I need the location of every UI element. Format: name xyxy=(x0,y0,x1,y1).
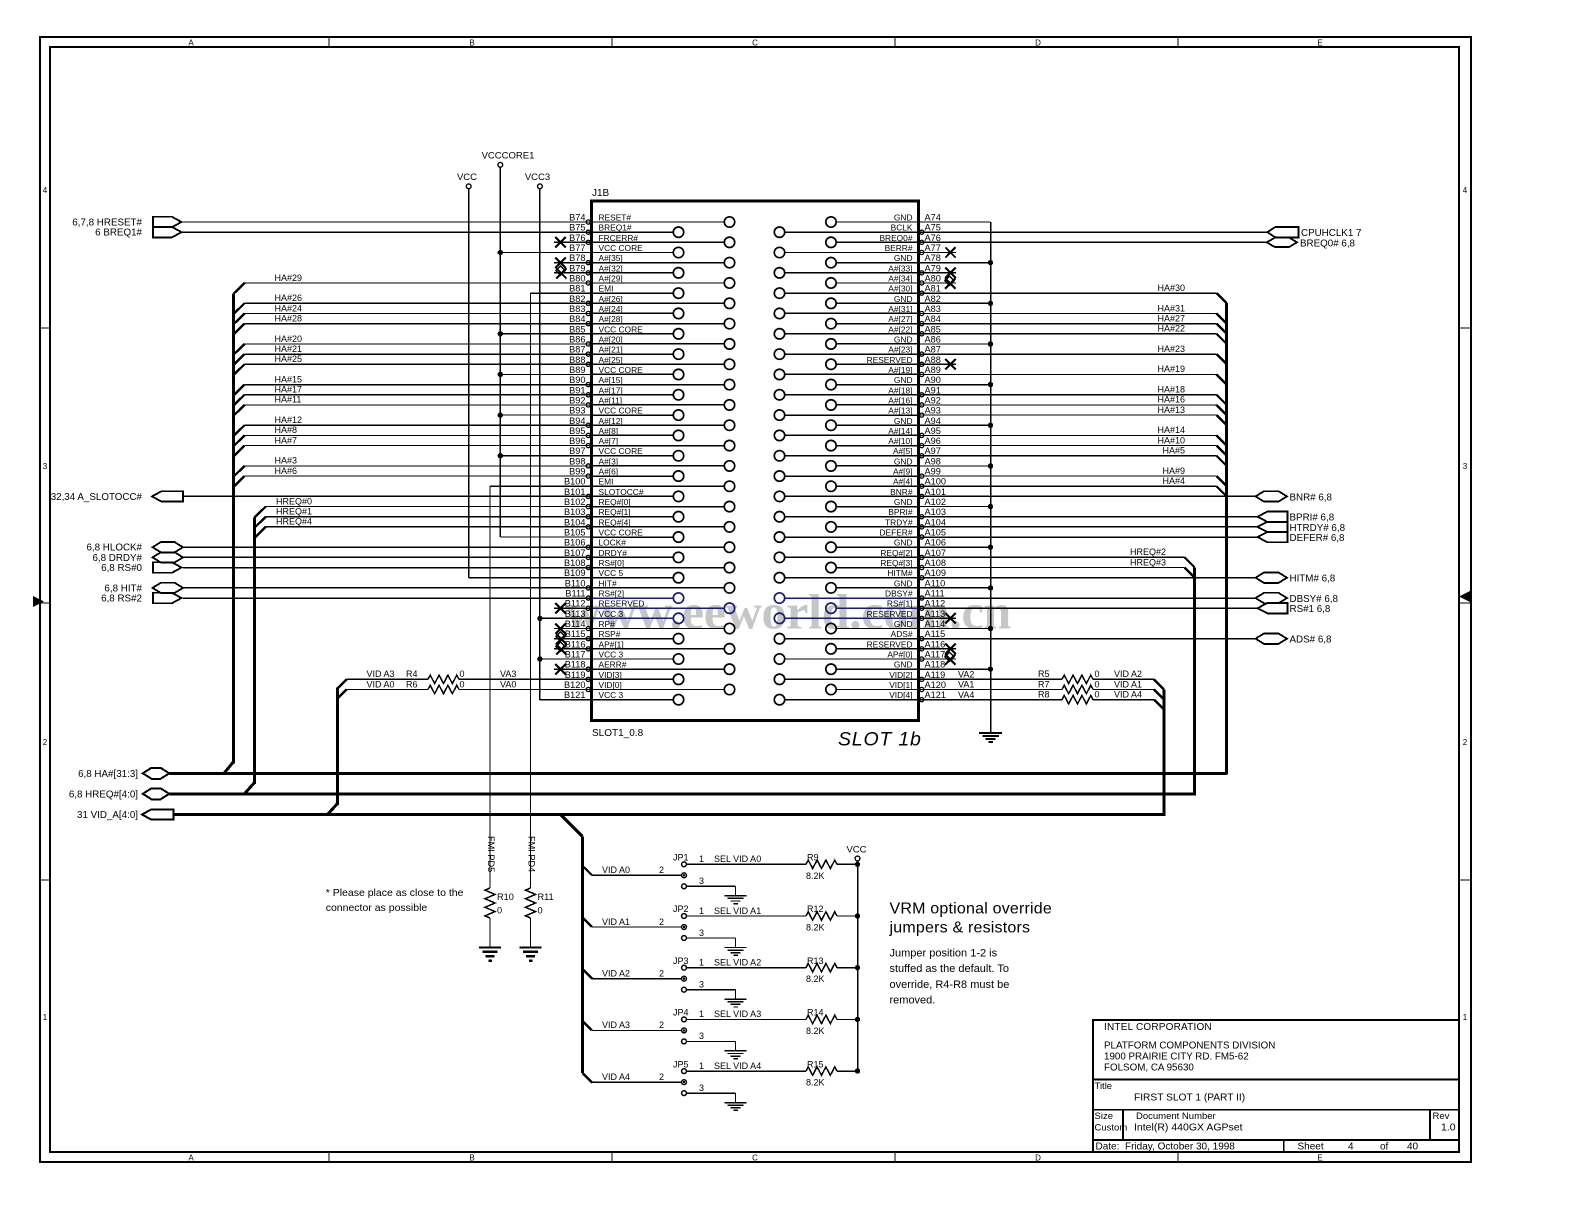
svg-text:R8: R8 xyxy=(1038,689,1050,699)
svg-text:HREQ#3: HREQ#3 xyxy=(1130,557,1166,567)
svg-text:B84: B84 xyxy=(569,314,585,324)
svg-text:HA#8: HA#8 xyxy=(275,425,298,435)
svg-text:HA#17: HA#17 xyxy=(275,385,303,395)
svg-text:B93: B93 xyxy=(569,406,585,416)
svg-text:1: 1 xyxy=(699,1009,704,1019)
svg-text:3: 3 xyxy=(699,928,704,938)
svg-text:HA#14: HA#14 xyxy=(1157,425,1185,435)
svg-text:RESERVED: RESERVED xyxy=(867,355,913,365)
svg-text:VID A2: VID A2 xyxy=(1114,669,1142,679)
svg-text:A91: A91 xyxy=(925,385,941,395)
svg-text:A106: A106 xyxy=(925,538,946,548)
svg-text:BPRI#: BPRI# xyxy=(888,507,913,517)
svg-text:B112: B112 xyxy=(565,599,586,609)
svg-text:RP#: RP# xyxy=(599,619,616,629)
svg-text:1: 1 xyxy=(699,958,704,968)
svg-text:TRDY#: TRDY# xyxy=(885,517,913,527)
svg-text:A115: A115 xyxy=(925,629,946,639)
svg-text:B91: B91 xyxy=(569,385,585,395)
svg-text:A#[16]: A#[16] xyxy=(888,395,912,405)
svg-text:4: 4 xyxy=(1463,186,1468,195)
svg-text:1: 1 xyxy=(699,906,704,916)
svg-text:RS#1 6,8: RS#1 6,8 xyxy=(1290,604,1331,615)
svg-text:A83: A83 xyxy=(925,304,941,314)
svg-text:GND: GND xyxy=(894,578,913,588)
svg-text:Friday, October 30, 1998: Friday, October 30, 1998 xyxy=(1125,1142,1235,1153)
svg-text:Sheet: Sheet xyxy=(1298,1142,1324,1153)
svg-text:JP4: JP4 xyxy=(673,1008,689,1018)
svg-text:A107: A107 xyxy=(925,548,946,558)
svg-text:VID[3]: VID[3] xyxy=(599,670,622,680)
svg-text:R10: R10 xyxy=(497,892,514,902)
svg-text:B94: B94 xyxy=(569,416,585,426)
svg-text:B104: B104 xyxy=(564,517,585,527)
svg-text:A#[11]: A#[11] xyxy=(599,395,623,405)
svg-text:B79: B79 xyxy=(569,263,585,273)
svg-text:8.2K: 8.2K xyxy=(806,1026,825,1036)
svg-text:VCC 3: VCC 3 xyxy=(599,609,624,619)
svg-text:GND: GND xyxy=(894,253,913,263)
svg-text:RESERVED: RESERVED xyxy=(599,599,645,609)
svg-text:B98: B98 xyxy=(569,456,585,466)
svg-text:A119: A119 xyxy=(925,670,946,680)
svg-text:RESERVED: RESERVED xyxy=(867,639,913,649)
svg-text:VCC CORE: VCC CORE xyxy=(599,243,644,253)
svg-text:HIT#: HIT# xyxy=(599,578,617,588)
svg-text:VCC 3: VCC 3 xyxy=(599,690,624,700)
svg-text:RS#[2]: RS#[2] xyxy=(599,589,625,599)
svg-text:DBSY#: DBSY# xyxy=(885,589,913,599)
svg-text:D: D xyxy=(1035,39,1041,48)
svg-text:A84: A84 xyxy=(925,314,941,324)
svg-text:A#[23]: A#[23] xyxy=(888,345,912,355)
svg-text:A#[14]: A#[14] xyxy=(888,426,912,436)
svg-text:A104: A104 xyxy=(925,517,946,527)
svg-text:JP3: JP3 xyxy=(673,956,689,966)
svg-text:of: of xyxy=(1380,1142,1389,1153)
svg-text:2: 2 xyxy=(659,1020,664,1030)
svg-text:ADS#: ADS# xyxy=(891,629,913,639)
svg-text:HREQ#4: HREQ#4 xyxy=(276,517,312,527)
svg-text:0: 0 xyxy=(460,679,465,689)
svg-text:31 VID_A[4:0]: 31 VID_A[4:0] xyxy=(77,810,138,821)
svg-text:VCCCORE1: VCCCORE1 xyxy=(482,151,535,162)
svg-text:A81: A81 xyxy=(925,284,941,294)
svg-text:B111: B111 xyxy=(565,589,585,599)
svg-text:FMI PD4: FMI PD4 xyxy=(527,836,537,872)
svg-text:HREQ#0: HREQ#0 xyxy=(276,496,312,506)
svg-text:6,8 RS#2: 6,8 RS#2 xyxy=(101,594,142,605)
svg-text:A116: A116 xyxy=(925,639,946,649)
svg-text:HA#5: HA#5 xyxy=(1162,446,1185,456)
svg-text:B115: B115 xyxy=(565,629,586,639)
svg-text:R14: R14 xyxy=(807,1008,824,1018)
svg-text:VID A1: VID A1 xyxy=(1114,679,1142,689)
svg-text:B103: B103 xyxy=(564,507,585,517)
svg-text:RESERVED: RESERVED xyxy=(867,609,913,619)
svg-text:3: 3 xyxy=(1463,462,1468,471)
svg-text:Date:: Date: xyxy=(1096,1142,1120,1153)
svg-text:C: C xyxy=(752,39,758,48)
svg-text:A#[7]: A#[7] xyxy=(599,436,619,446)
svg-text:HA#30: HA#30 xyxy=(1157,283,1185,293)
svg-text:B83: B83 xyxy=(569,304,585,314)
svg-text:8.2K: 8.2K xyxy=(806,1078,825,1088)
svg-text:VCC3: VCC3 xyxy=(525,172,550,183)
svg-text:HA#21: HA#21 xyxy=(275,344,303,354)
svg-text:A96: A96 xyxy=(925,436,941,446)
svg-text:GND: GND xyxy=(894,660,913,670)
svg-text:R5: R5 xyxy=(1038,669,1050,679)
svg-text:A101: A101 xyxy=(925,487,946,497)
svg-text:B108: B108 xyxy=(564,558,585,568)
svg-text:Title: Title xyxy=(1095,1081,1113,1092)
svg-text:A86: A86 xyxy=(925,334,941,344)
svg-text:BNR# 6,8: BNR# 6,8 xyxy=(1290,492,1333,503)
svg-text:1: 1 xyxy=(699,854,704,864)
svg-text:2: 2 xyxy=(43,738,48,747)
svg-text:A114: A114 xyxy=(925,619,946,629)
svg-text:SLOT 1b: SLOT 1b xyxy=(838,729,922,751)
svg-text:A#[18]: A#[18] xyxy=(888,385,912,395)
svg-text:EMI: EMI xyxy=(599,284,614,294)
svg-text:A97: A97 xyxy=(925,446,941,456)
svg-text:1: 1 xyxy=(699,1061,704,1071)
svg-text:2: 2 xyxy=(659,969,664,979)
svg-text:R9: R9 xyxy=(807,853,819,863)
svg-text:A: A xyxy=(188,1154,194,1163)
svg-text:A#[33]: A#[33] xyxy=(888,263,912,273)
svg-text:HA#16: HA#16 xyxy=(1157,395,1185,405)
svg-text:HA#11: HA#11 xyxy=(275,395,302,405)
svg-text:A117: A117 xyxy=(925,650,946,660)
svg-text:6,8 RS#0: 6,8 RS#0 xyxy=(101,563,142,574)
svg-text:B80: B80 xyxy=(569,273,585,283)
svg-text:A#[27]: A#[27] xyxy=(888,314,912,324)
svg-text:VA0: VA0 xyxy=(500,679,516,689)
svg-text:A93: A93 xyxy=(925,406,941,416)
svg-text:A#[8]: A#[8] xyxy=(599,426,619,436)
svg-text:B119: B119 xyxy=(565,670,586,680)
svg-text:A103: A103 xyxy=(925,507,946,517)
svg-text:VID A2: VID A2 xyxy=(602,969,630,979)
svg-text:A#[20]: A#[20] xyxy=(599,334,623,344)
svg-text:B105: B105 xyxy=(564,528,585,538)
svg-text:B117: B117 xyxy=(565,650,586,660)
svg-text:A121: A121 xyxy=(925,690,946,700)
svg-text:4: 4 xyxy=(1348,1142,1354,1153)
svg-text:HA#23: HA#23 xyxy=(1157,344,1185,354)
svg-text:GND: GND xyxy=(894,619,913,629)
svg-text:B109: B109 xyxy=(564,568,585,578)
svg-text:1: 1 xyxy=(43,1013,48,1022)
svg-text:8.2K: 8.2K xyxy=(806,871,825,881)
svg-text:3: 3 xyxy=(699,876,704,886)
svg-text:DEFER#: DEFER# xyxy=(879,528,912,538)
svg-text:A#[10]: A#[10] xyxy=(888,436,912,446)
svg-text:A#[3]: A#[3] xyxy=(599,456,619,466)
svg-text:A#[28]: A#[28] xyxy=(599,314,623,324)
svg-text:REQ#[0]: REQ#[0] xyxy=(599,497,631,507)
svg-text:A85: A85 xyxy=(925,324,941,334)
svg-text:B75: B75 xyxy=(569,223,585,233)
svg-text:A#[22]: A#[22] xyxy=(888,324,912,334)
svg-text:FMI PD5: FMI PD5 xyxy=(486,836,496,872)
svg-text:REQ#[2]: REQ#[2] xyxy=(880,548,912,558)
svg-text:A108: A108 xyxy=(925,558,946,568)
svg-text:HA#4: HA#4 xyxy=(1162,476,1185,486)
svg-text:8.2K: 8.2K xyxy=(806,923,825,933)
svg-text:SEL VID A3: SEL VID A3 xyxy=(714,1009,761,1019)
svg-text:HA#7: HA#7 xyxy=(275,435,298,445)
svg-text:A87: A87 xyxy=(925,345,941,355)
svg-text:A95: A95 xyxy=(925,426,941,436)
svg-text:SEL VID A0: SEL VID A0 xyxy=(714,854,761,864)
svg-text:HA#26: HA#26 xyxy=(275,293,303,303)
svg-text:A: A xyxy=(188,39,194,48)
svg-text:DEFER# 6,8: DEFER# 6,8 xyxy=(1290,533,1346,544)
svg-text:R12: R12 xyxy=(807,904,824,914)
svg-text:GND: GND xyxy=(894,538,913,548)
svg-text:B: B xyxy=(469,39,474,48)
svg-text:B116: B116 xyxy=(565,639,586,649)
svg-text:0: 0 xyxy=(460,669,465,679)
svg-text:override, R4-R8 must be: override, R4-R8 must be xyxy=(890,979,1010,991)
svg-text:AP#[1]: AP#[1] xyxy=(599,639,624,649)
svg-text:3: 3 xyxy=(699,1083,704,1093)
svg-text:A#[24]: A#[24] xyxy=(599,304,623,314)
svg-text:B114: B114 xyxy=(565,619,586,629)
svg-text:GND: GND xyxy=(894,294,913,304)
svg-text:VID[2]: VID[2] xyxy=(889,670,912,680)
svg-text:VA4: VA4 xyxy=(958,690,974,700)
svg-text:HA#28: HA#28 xyxy=(275,313,303,323)
svg-text:* Please place as close to the: * Please place as close to the xyxy=(326,887,464,899)
svg-text:2: 2 xyxy=(1463,738,1468,747)
svg-text:R6: R6 xyxy=(406,679,418,689)
svg-text:A#[31]: A#[31] xyxy=(888,304,912,314)
svg-text:D: D xyxy=(1035,1154,1041,1163)
svg-text:RESET#: RESET# xyxy=(599,213,632,223)
svg-text:EMI: EMI xyxy=(599,477,614,487)
svg-text:RS#[0]: RS#[0] xyxy=(599,558,625,568)
svg-text:0: 0 xyxy=(497,906,502,916)
svg-text:B90: B90 xyxy=(569,375,585,385)
svg-text:HREQ#2: HREQ#2 xyxy=(1130,547,1166,557)
svg-text:A110: A110 xyxy=(925,578,946,588)
svg-text:VCC CORE: VCC CORE xyxy=(599,528,644,538)
svg-text:VCC CORE: VCC CORE xyxy=(599,406,644,416)
svg-text:B110: B110 xyxy=(565,578,586,588)
svg-text:HA#27: HA#27 xyxy=(1157,313,1185,323)
svg-text:B96: B96 xyxy=(569,436,585,446)
svg-text:3: 3 xyxy=(699,1031,704,1041)
svg-text:JP5: JP5 xyxy=(673,1059,689,1069)
svg-text:AERR#: AERR# xyxy=(599,660,627,670)
svg-text:B99: B99 xyxy=(569,467,585,477)
svg-text:REQ#[4]: REQ#[4] xyxy=(599,517,631,527)
svg-text:PLATFORM COMPONENTS DIVISION: PLATFORM COMPONENTS DIVISION xyxy=(1104,1041,1275,1052)
svg-text:A#[12]: A#[12] xyxy=(599,416,623,426)
svg-text:A#[5]: A#[5] xyxy=(893,446,913,456)
svg-text:A98: A98 xyxy=(925,456,941,466)
svg-text:VRM optional override: VRM optional override xyxy=(890,901,1053,918)
svg-text:A77: A77 xyxy=(925,243,941,253)
svg-text:GND: GND xyxy=(894,213,913,223)
svg-text:A90: A90 xyxy=(925,375,941,385)
svg-text:A113: A113 xyxy=(925,609,946,619)
svg-text:A75: A75 xyxy=(925,223,941,233)
svg-text:AP#[0]: AP#[0] xyxy=(887,650,912,660)
svg-text:A#[26]: A#[26] xyxy=(599,294,623,304)
svg-text:1: 1 xyxy=(1463,1013,1468,1022)
svg-text:VA2: VA2 xyxy=(958,670,974,680)
svg-text:B87: B87 xyxy=(569,345,585,355)
svg-text:Size: Size xyxy=(1095,1111,1113,1122)
svg-text:REQ#[3]: REQ#[3] xyxy=(880,558,912,568)
svg-text:B92: B92 xyxy=(569,395,585,405)
svg-text:B107: B107 xyxy=(564,548,585,558)
svg-text:SEL VID A1: SEL VID A1 xyxy=(714,906,761,916)
svg-text:GND: GND xyxy=(894,497,913,507)
svg-text:A92: A92 xyxy=(925,395,941,405)
svg-text:A76: A76 xyxy=(925,233,941,243)
svg-text:B78: B78 xyxy=(569,253,585,263)
svg-text:VCC CORE: VCC CORE xyxy=(599,365,644,375)
svg-text:R4: R4 xyxy=(406,669,418,679)
svg-text:HA#3: HA#3 xyxy=(275,456,298,466)
svg-text:B102: B102 xyxy=(564,497,585,507)
svg-text:A#[29]: A#[29] xyxy=(599,273,623,283)
svg-text:HA#22: HA#22 xyxy=(1157,324,1185,334)
svg-text:VID[4]: VID[4] xyxy=(889,690,912,700)
svg-text:A109: A109 xyxy=(925,568,946,578)
svg-text:HA#19: HA#19 xyxy=(1157,364,1185,374)
svg-text:A78: A78 xyxy=(925,253,941,263)
svg-text:0: 0 xyxy=(1095,689,1100,699)
svg-text:VID A0: VID A0 xyxy=(602,865,630,875)
svg-text:B89: B89 xyxy=(569,365,585,375)
svg-text:FRCERR#: FRCERR# xyxy=(599,233,639,243)
svg-text:HA#10: HA#10 xyxy=(1157,435,1185,445)
svg-text:B106: B106 xyxy=(564,538,585,548)
svg-text:HA#31: HA#31 xyxy=(1157,303,1185,313)
svg-text:A82: A82 xyxy=(925,294,941,304)
svg-text:BERR#: BERR# xyxy=(885,243,913,253)
svg-text:VID[0]: VID[0] xyxy=(599,680,622,690)
svg-text:0: 0 xyxy=(1095,669,1100,679)
svg-text:A100: A100 xyxy=(925,477,946,487)
svg-text:SLOTOCC#: SLOTOCC# xyxy=(599,487,644,497)
svg-text:R7: R7 xyxy=(1038,679,1050,689)
svg-text:B: B xyxy=(469,1154,474,1163)
svg-text:0: 0 xyxy=(538,906,543,916)
svg-text:HA#18: HA#18 xyxy=(1157,385,1185,395)
svg-text:B74: B74 xyxy=(569,213,585,223)
svg-text:B100: B100 xyxy=(564,477,585,487)
svg-text:HA#20: HA#20 xyxy=(275,334,303,344)
svg-text:GND: GND xyxy=(894,375,913,385)
svg-text:C: C xyxy=(752,1154,758,1163)
svg-text:SEL VID A2: SEL VID A2 xyxy=(714,958,761,968)
svg-text:VCC CORE: VCC CORE xyxy=(599,446,644,456)
svg-text:VID A3: VID A3 xyxy=(367,669,395,679)
svg-text:HA#25: HA#25 xyxy=(275,354,303,364)
svg-text:VCC: VCC xyxy=(457,172,477,183)
svg-text:VCC 3: VCC 3 xyxy=(599,650,624,660)
svg-text:removed.: removed. xyxy=(890,995,936,1007)
svg-text:FIRST SLOT 1 (PART II): FIRST SLOT 1 (PART II) xyxy=(1134,1093,1245,1104)
svg-text:1.0: 1.0 xyxy=(1441,1122,1456,1134)
svg-text:A#[15]: A#[15] xyxy=(599,375,623,385)
svg-text:R13: R13 xyxy=(807,956,824,966)
svg-text:VCC 5: VCC 5 xyxy=(599,568,624,578)
svg-text:HA#13: HA#13 xyxy=(1157,405,1185,415)
svg-text:HA#12: HA#12 xyxy=(275,415,303,425)
svg-text:BREQ0# 6,8: BREQ0# 6,8 xyxy=(1300,238,1356,249)
svg-text:Intel(R) 440GX AGPset: Intel(R) 440GX AGPset xyxy=(1134,1122,1243,1134)
svg-text:3: 3 xyxy=(43,462,48,471)
svg-text:E: E xyxy=(1317,1154,1322,1163)
svg-text:Rev: Rev xyxy=(1433,1111,1450,1122)
svg-text:B76: B76 xyxy=(569,233,585,243)
svg-text:E: E xyxy=(1317,39,1322,48)
svg-text:VID A4: VID A4 xyxy=(602,1072,630,1082)
svg-text:A#[30]: A#[30] xyxy=(888,284,912,294)
svg-text:B82: B82 xyxy=(569,294,585,304)
svg-text:A88: A88 xyxy=(925,355,941,365)
svg-text:R15: R15 xyxy=(807,1059,824,1069)
svg-text:Custom: Custom xyxy=(1095,1123,1128,1134)
svg-text:A99: A99 xyxy=(925,467,941,477)
svg-text:JP1: JP1 xyxy=(673,853,689,863)
svg-text:4: 4 xyxy=(43,186,48,195)
svg-text:LOCK#: LOCK# xyxy=(599,538,627,548)
svg-text:A#[19]: A#[19] xyxy=(888,365,912,375)
svg-text:B77: B77 xyxy=(569,243,585,253)
svg-text:HA#24: HA#24 xyxy=(275,303,303,313)
svg-text:VID A0: VID A0 xyxy=(367,679,395,689)
svg-text:32,34 A_SLOTOCC#: 32,34 A_SLOTOCC# xyxy=(51,492,143,503)
svg-text:ADS# 6,8: ADS# 6,8 xyxy=(1290,635,1332,646)
svg-text:INTEL CORPORATION: INTEL CORPORATION xyxy=(1104,1022,1212,1033)
svg-text:A112: A112 xyxy=(925,599,946,609)
svg-text:B86: B86 xyxy=(569,334,585,344)
svg-text:VCC CORE: VCC CORE xyxy=(599,324,644,334)
svg-text:DRDY#: DRDY# xyxy=(599,548,628,558)
svg-text:HITM# 6,8: HITM# 6,8 xyxy=(1290,574,1336,585)
svg-text:GND: GND xyxy=(894,416,913,426)
svg-text:BREQ1#: BREQ1# xyxy=(599,223,632,233)
svg-text:SEL VID A4: SEL VID A4 xyxy=(714,1061,761,1071)
svg-text:A94: A94 xyxy=(925,416,941,426)
svg-text:A74: A74 xyxy=(925,213,941,223)
svg-text:RSP#: RSP# xyxy=(599,629,621,639)
svg-text:GND: GND xyxy=(894,334,913,344)
svg-text:REQ#[1]: REQ#[1] xyxy=(599,507,631,517)
svg-text:SLOT1_0.8: SLOT1_0.8 xyxy=(592,728,644,739)
svg-text:A79: A79 xyxy=(925,263,941,273)
svg-text:8.2K: 8.2K xyxy=(806,974,825,984)
svg-text:B101: B101 xyxy=(564,487,585,497)
svg-text:VID[1]: VID[1] xyxy=(889,680,912,690)
svg-text:A118: A118 xyxy=(925,660,946,670)
svg-text:B95: B95 xyxy=(569,426,585,436)
svg-text:A#[34]: A#[34] xyxy=(888,273,912,283)
svg-text:A#[9]: A#[9] xyxy=(893,467,913,477)
svg-text:VA1: VA1 xyxy=(958,680,974,690)
svg-text:A#[6]: A#[6] xyxy=(599,467,619,477)
